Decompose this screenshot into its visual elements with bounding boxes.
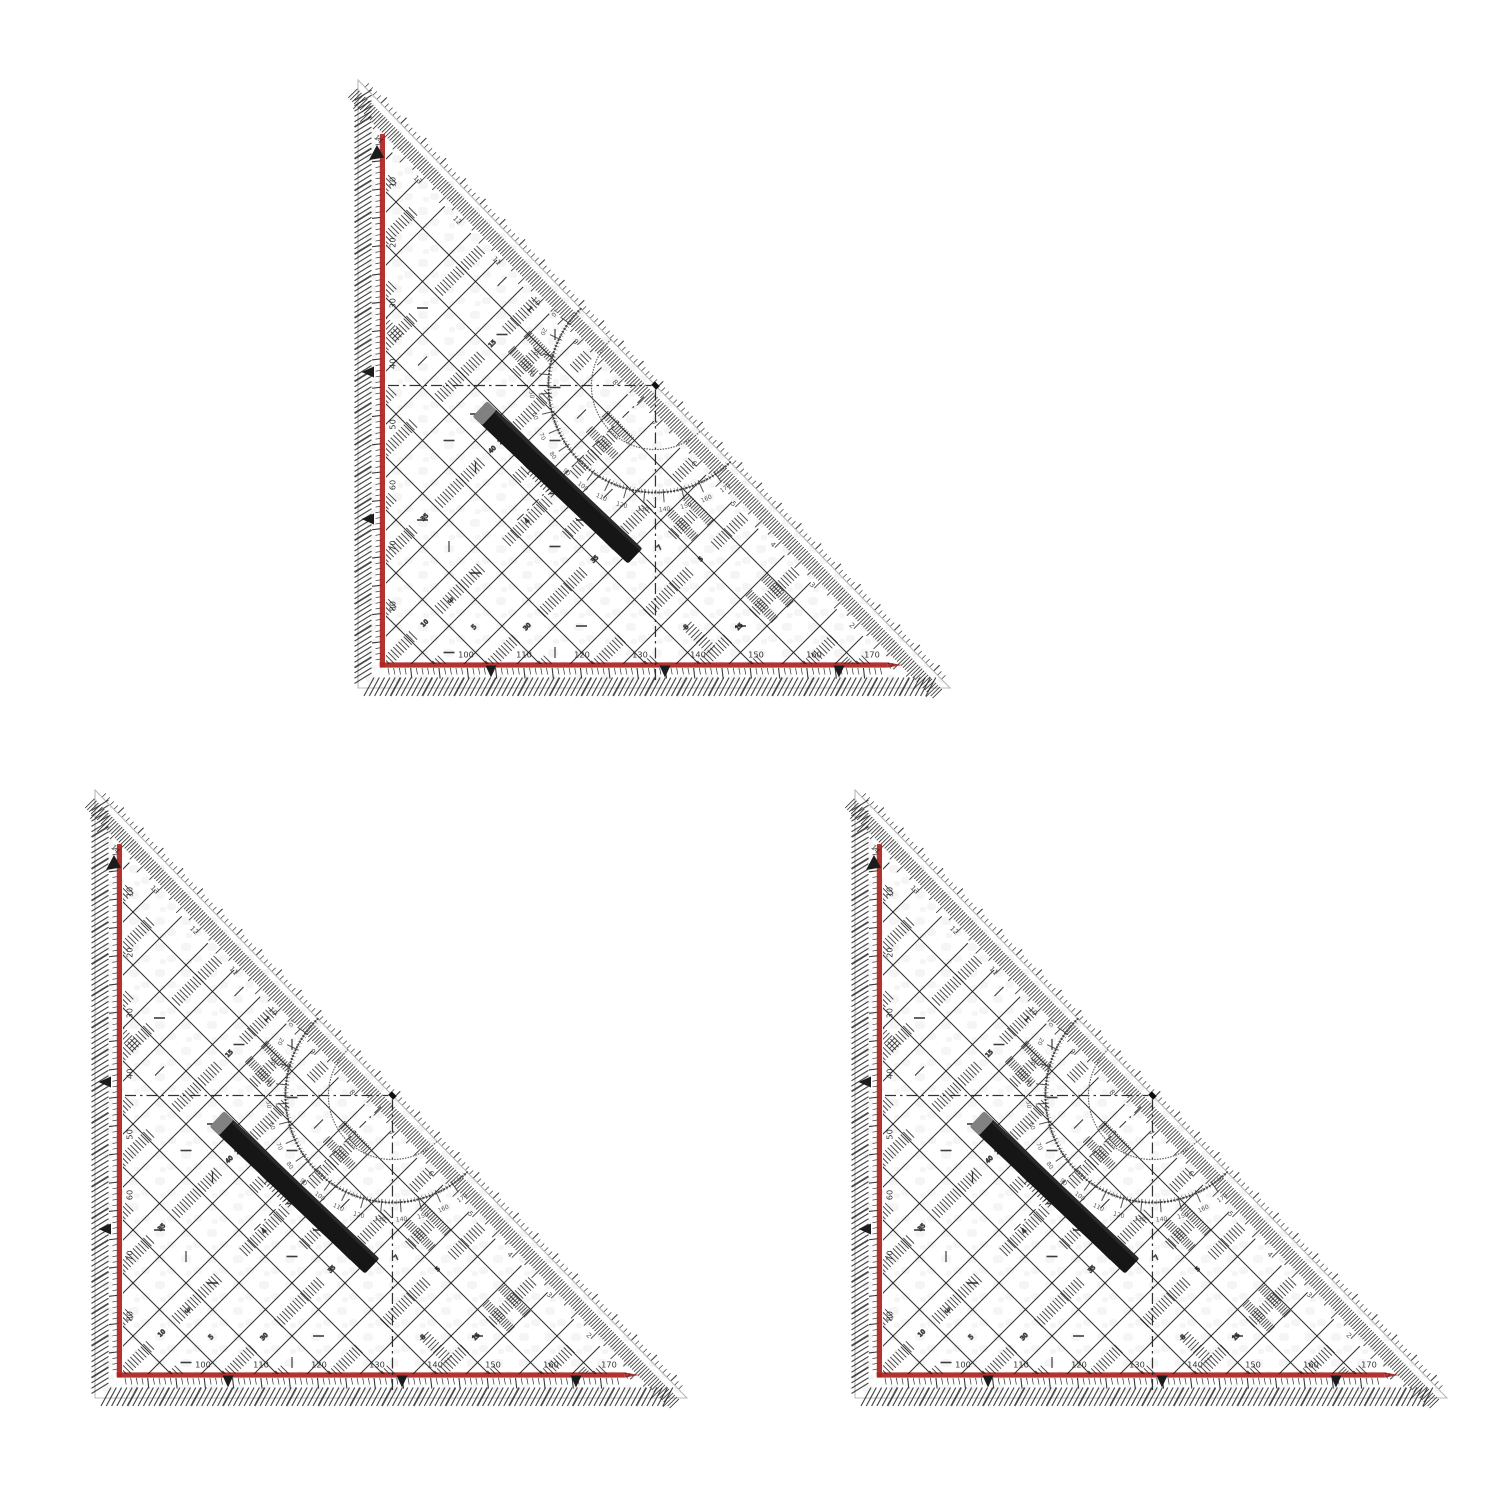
drafting-triangle-bottom-right: 5101520253035405101520253035405101512345… bbox=[835, 784, 1455, 1434]
svg-text:40: 40 bbox=[388, 359, 398, 369]
svg-text:30: 30 bbox=[125, 1008, 135, 1018]
svg-text:40: 40 bbox=[125, 1069, 135, 1079]
svg-text:110: 110 bbox=[253, 1360, 269, 1370]
svg-text:100: 100 bbox=[458, 650, 474, 660]
svg-text:5: 5 bbox=[429, 953, 437, 961]
svg-text:50: 50 bbox=[528, 391, 536, 399]
svg-text:25: 25 bbox=[623, 203, 633, 213]
svg-text:50: 50 bbox=[265, 1101, 273, 1109]
svg-text:80: 80 bbox=[125, 1311, 135, 1321]
svg-text:20: 20 bbox=[125, 947, 135, 957]
svg-text:25: 25 bbox=[360, 913, 370, 923]
svg-text:60: 60 bbox=[388, 480, 398, 490]
svg-text:50: 50 bbox=[125, 1129, 135, 1139]
svg-text:15: 15 bbox=[427, 1058, 437, 1068]
svg-text:40: 40 bbox=[725, 419, 735, 429]
svg-text:160: 160 bbox=[806, 650, 822, 660]
svg-text:140: 140 bbox=[659, 506, 671, 514]
svg-text:140: 140 bbox=[427, 1360, 443, 1370]
svg-text:130: 130 bbox=[637, 505, 649, 513]
svg-text:70: 70 bbox=[388, 540, 398, 550]
svg-text:10: 10 bbox=[292, 875, 302, 885]
svg-text:25: 25 bbox=[562, 923, 572, 933]
svg-text:160: 160 bbox=[543, 1360, 559, 1370]
svg-text:40: 40 bbox=[528, 369, 536, 377]
svg-text:10: 10 bbox=[388, 177, 398, 187]
svg-text:50: 50 bbox=[388, 419, 398, 429]
svg-text:170: 170 bbox=[601, 1360, 617, 1370]
svg-text:40: 40 bbox=[265, 1079, 273, 1087]
svg-text:10: 10 bbox=[125, 887, 135, 897]
svg-text:120: 120 bbox=[311, 1360, 327, 1370]
svg-text:20: 20 bbox=[495, 990, 505, 1000]
svg-text:120: 120 bbox=[574, 650, 590, 660]
svg-text:25: 25 bbox=[825, 213, 835, 223]
drafting-triangle-top: 5101520253035405101520253035405101512345… bbox=[338, 74, 958, 724]
svg-text:150: 150 bbox=[748, 650, 764, 660]
svg-text:130: 130 bbox=[374, 1215, 386, 1223]
svg-text:130: 130 bbox=[369, 1360, 385, 1370]
svg-text:110: 110 bbox=[516, 650, 532, 660]
svg-text:30: 30 bbox=[690, 136, 700, 146]
svg-text:70: 70 bbox=[125, 1250, 135, 1260]
svg-text:5: 5 bbox=[692, 243, 700, 251]
svg-text:20: 20 bbox=[388, 237, 398, 247]
svg-text:80: 80 bbox=[388, 601, 398, 611]
svg-text:60: 60 bbox=[125, 1190, 135, 1200]
svg-text:140: 140 bbox=[690, 650, 706, 660]
drafting-triangle-bottom-left: 5101520253035405101520253035405101512345… bbox=[75, 784, 695, 1434]
svg-text:170: 170 bbox=[864, 650, 880, 660]
svg-text:15: 15 bbox=[690, 348, 700, 358]
svg-text:30: 30 bbox=[388, 298, 398, 308]
svg-text:40: 40 bbox=[462, 1129, 472, 1139]
svg-text:20: 20 bbox=[758, 280, 768, 290]
svg-text:140: 140 bbox=[396, 1216, 408, 1224]
svg-text:30: 30 bbox=[427, 846, 437, 856]
product-photo: 5101520253035405101520253035405101512345… bbox=[0, 0, 1500, 1500]
svg-text:10: 10 bbox=[555, 165, 565, 175]
svg-text:130: 130 bbox=[632, 650, 648, 660]
svg-text:150: 150 bbox=[485, 1360, 501, 1370]
svg-text:100: 100 bbox=[195, 1360, 211, 1370]
